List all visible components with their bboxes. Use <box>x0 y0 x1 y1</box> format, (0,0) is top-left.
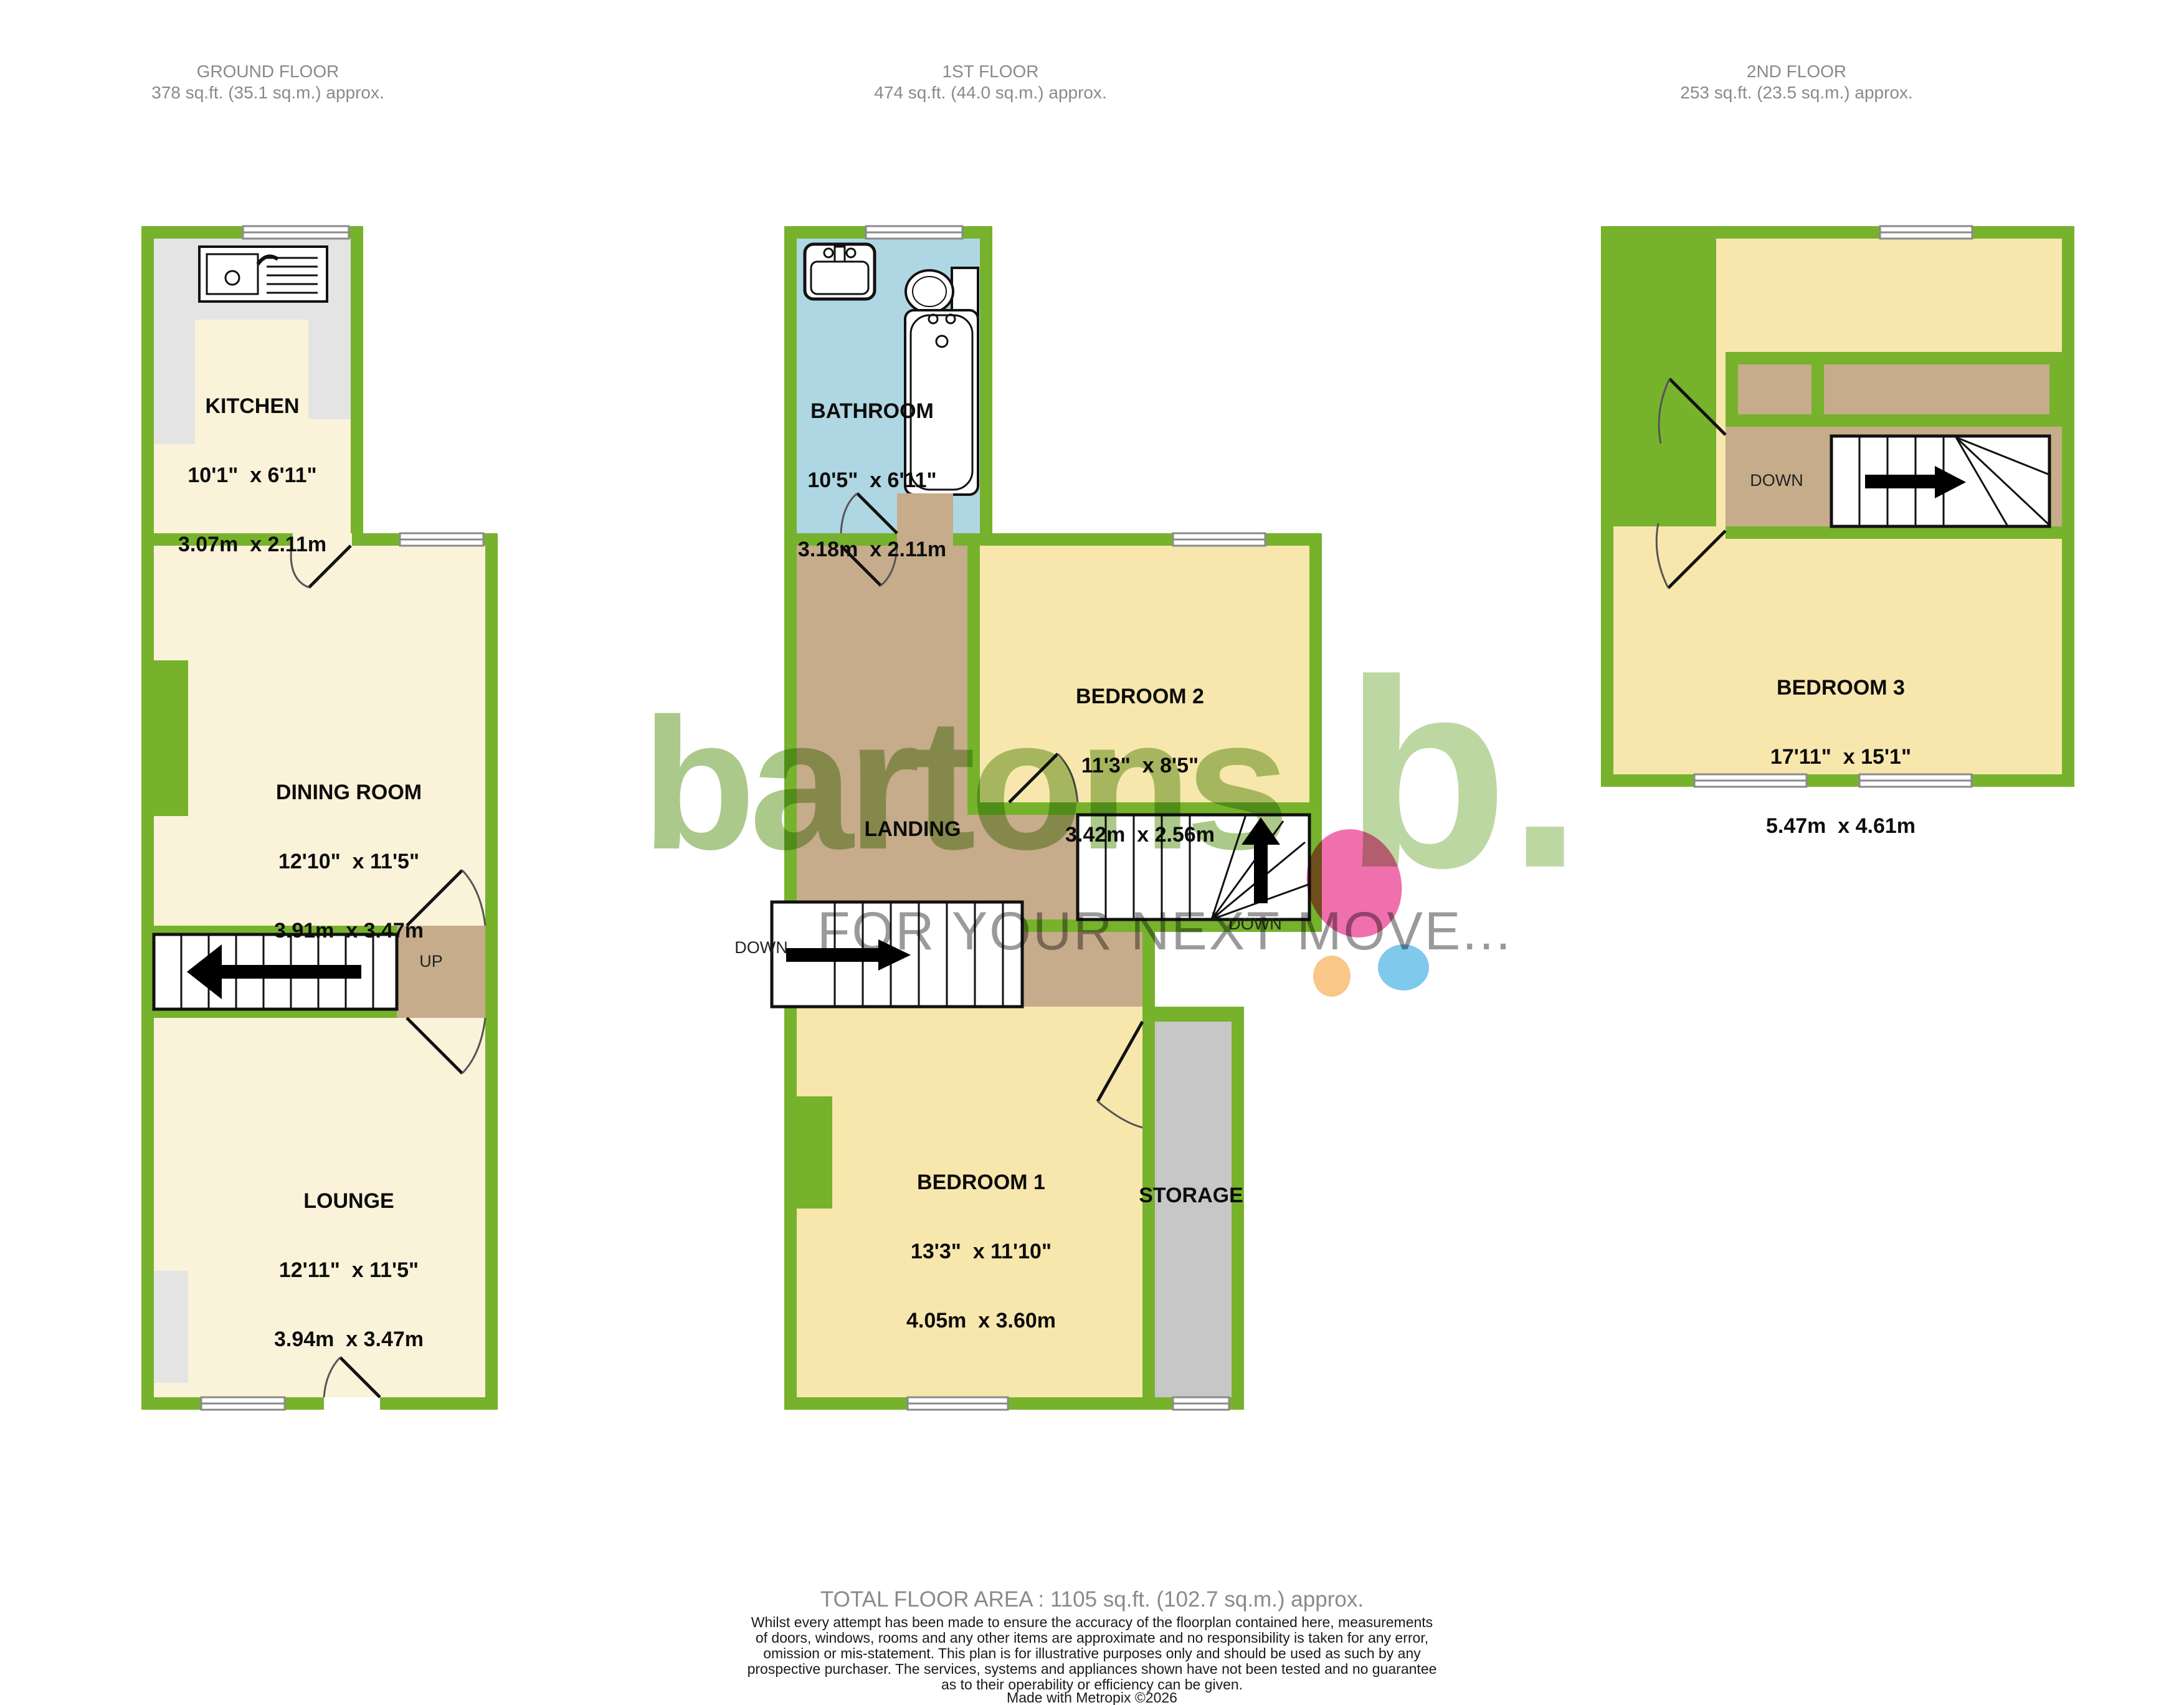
down-label-right: DOWN <box>1228 914 1281 934</box>
storage-label: STORAGE <box>1139 1184 1243 1208</box>
up-label: UP <box>419 952 443 971</box>
window <box>866 226 962 239</box>
window <box>1173 533 1265 546</box>
floor-area: 253 sq.ft. (23.5 sq.m.) approx. <box>1680 82 1913 103</box>
room-size-metric: 4.05m x 3.60m <box>906 1309 1056 1332</box>
staircase-down <box>772 902 1022 1007</box>
window <box>243 226 349 239</box>
landing-label: LANDING <box>865 817 961 842</box>
stairs-arrow-icon <box>1865 475 1935 488</box>
chimney-breast <box>797 1096 832 1209</box>
disclaimer-text: Whilst every attempt has been made to en… <box>0 1615 2184 1693</box>
second-floor-header: 2ND FLOOR 253 sq.ft. (23.5 sq.m.) approx… <box>1680 61 1913 103</box>
staircase-down <box>1831 436 2049 526</box>
bedroom2-label: BEDROOM 2 11'3" x 8'5" 3.42m x 2.56m <box>1065 639 1215 893</box>
bedroom1-label: BEDROOM 1 13'3" x 11'10" 4.05m x 3.60m <box>906 1125 1056 1379</box>
window <box>201 1397 285 1410</box>
down-label-2nd: DOWN <box>1750 471 1803 490</box>
window <box>1173 1397 1229 1410</box>
stairs-arrow-icon <box>1254 843 1268 903</box>
room-size-metric: 3.42m x 2.56m <box>1065 824 1215 847</box>
room-size-metric: 5.47m x 4.61m <box>1766 815 1916 838</box>
bathroom-label: BATHROOM 10'5" x 6'11" 3.18m x 2.11m <box>798 354 946 607</box>
room-size-imperial: 12'11" x 11'5" <box>274 1259 424 1282</box>
kitchen-label: KITCHEN 10'1" x 6'11" 3.07m x 2.11m <box>178 349 326 602</box>
room-size-imperial: 12'10" x 11'5" <box>274 850 424 873</box>
ground-floor-header: GROUND FLOOR 378 sq.ft. (35.1 sq.m.) app… <box>151 61 384 103</box>
stairs-arrow-icon <box>786 948 878 962</box>
room-name: KITCHEN <box>178 395 326 418</box>
room-name: BEDROOM 2 <box>1065 685 1215 708</box>
floor-title: GROUND FLOOR <box>151 61 384 82</box>
basin-icon <box>805 244 875 299</box>
room-size-metric: 3.94m x 3.47m <box>274 1328 424 1351</box>
room-name: BEDROOM 3 <box>1766 677 1916 700</box>
room-size-imperial: 11'3" x 8'5" <box>1065 754 1215 777</box>
room-size-metric: 3.07m x 2.11m <box>178 533 326 556</box>
room-name: BATHROOM <box>798 400 946 423</box>
hall-floor <box>1022 932 1142 1007</box>
storage-floor <box>1155 1022 1232 1397</box>
floor-area: 474 sq.ft. (44.0 sq.m.) approx. <box>874 82 1107 103</box>
kitchen-sink-icon <box>199 247 327 302</box>
logo-dot-blue-icon <box>1378 944 1429 990</box>
floor-title: 2ND FLOOR <box>1680 61 1913 82</box>
down-label-left: DOWN <box>734 938 787 957</box>
chimney-breast <box>154 660 188 816</box>
room-name: BEDROOM 1 <box>906 1171 1056 1194</box>
reduced-headroom-block <box>1613 239 1716 526</box>
credit-text: Made with Metropix ©2026 <box>0 1689 2184 1705</box>
window <box>400 533 483 546</box>
wall <box>1726 526 2062 539</box>
room-size-metric: 3.91m x 3.47m <box>274 919 424 943</box>
bedroom3-label: BEDROOM 3 17'11" x 15'1" 5.47m x 4.61m <box>1766 630 1916 884</box>
chimney-recess <box>154 1271 188 1383</box>
dining-room-label: DINING ROOM 12'10" x 11'5" 3.91m x 3.47m <box>274 735 424 989</box>
total-floor-area: TOTAL FLOOR AREA : 1105 sq.ft. (102.7 sq… <box>0 1587 2184 1612</box>
room-size-metric: 3.18m x 2.11m <box>798 538 946 561</box>
room-size-imperial: 17'11" x 15'1" <box>1766 746 1916 769</box>
room-name: DINING ROOM <box>274 781 424 804</box>
toilet-icon <box>906 268 978 315</box>
floor-title: 1ST FLOOR <box>874 61 1107 82</box>
front-door-opening <box>324 1397 380 1411</box>
floor-area: 378 sq.ft. (35.1 sq.m.) approx. <box>151 82 384 103</box>
brand-monogram-icon: b. <box>1344 640 1582 908</box>
lounge-label: LOUNGE 12'11" x 11'5" 3.94m x 3.47m <box>274 1144 424 1397</box>
floorplan-page: GROUND FLOOR 378 sq.ft. (35.1 sq.m.) app… <box>0 0 2184 1705</box>
first-floor-header: 1ST FLOOR 474 sq.ft. (44.0 sq.m.) approx… <box>874 61 1107 103</box>
room-name: LOUNGE <box>274 1190 424 1213</box>
room-size-imperial: 13'3" x 11'10" <box>906 1240 1056 1263</box>
window <box>1880 226 1972 239</box>
room-size-imperial: 10'5" x 6'11" <box>798 469 946 492</box>
window <box>908 1397 1008 1410</box>
eaves-storage <box>1726 352 2062 427</box>
room-size-imperial: 10'1" x 6'11" <box>178 464 326 487</box>
